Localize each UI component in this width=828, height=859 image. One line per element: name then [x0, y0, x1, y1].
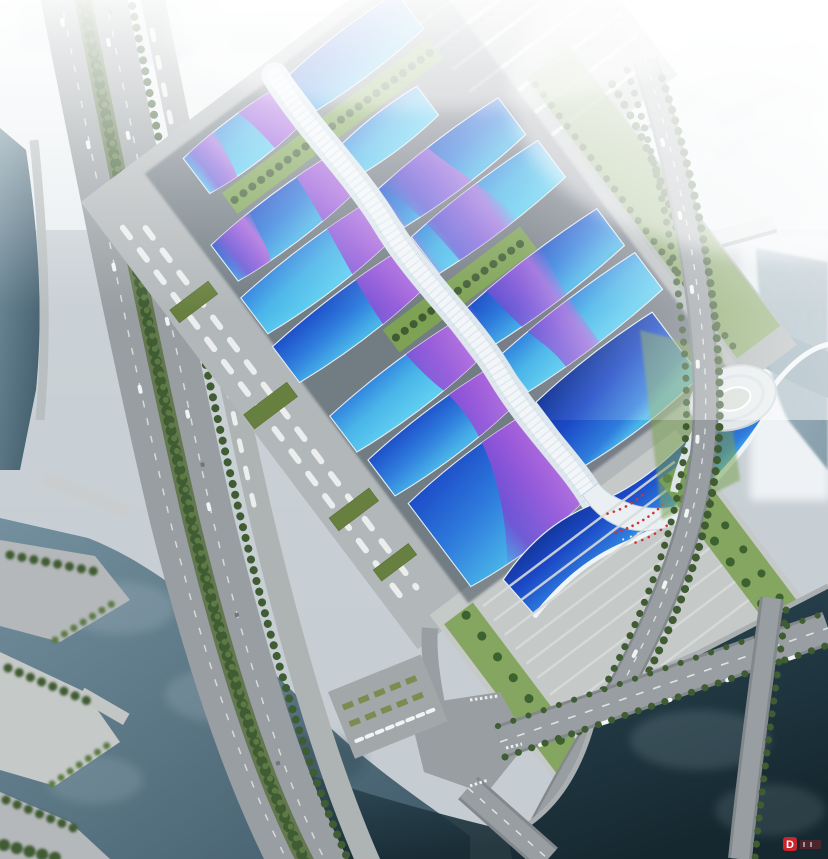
watermark-mark-detail	[803, 842, 805, 847]
aerial-rendering-image: D	[0, 0, 828, 859]
watermark-mark-detail	[810, 842, 812, 847]
watermark-letter: D	[786, 839, 794, 851]
